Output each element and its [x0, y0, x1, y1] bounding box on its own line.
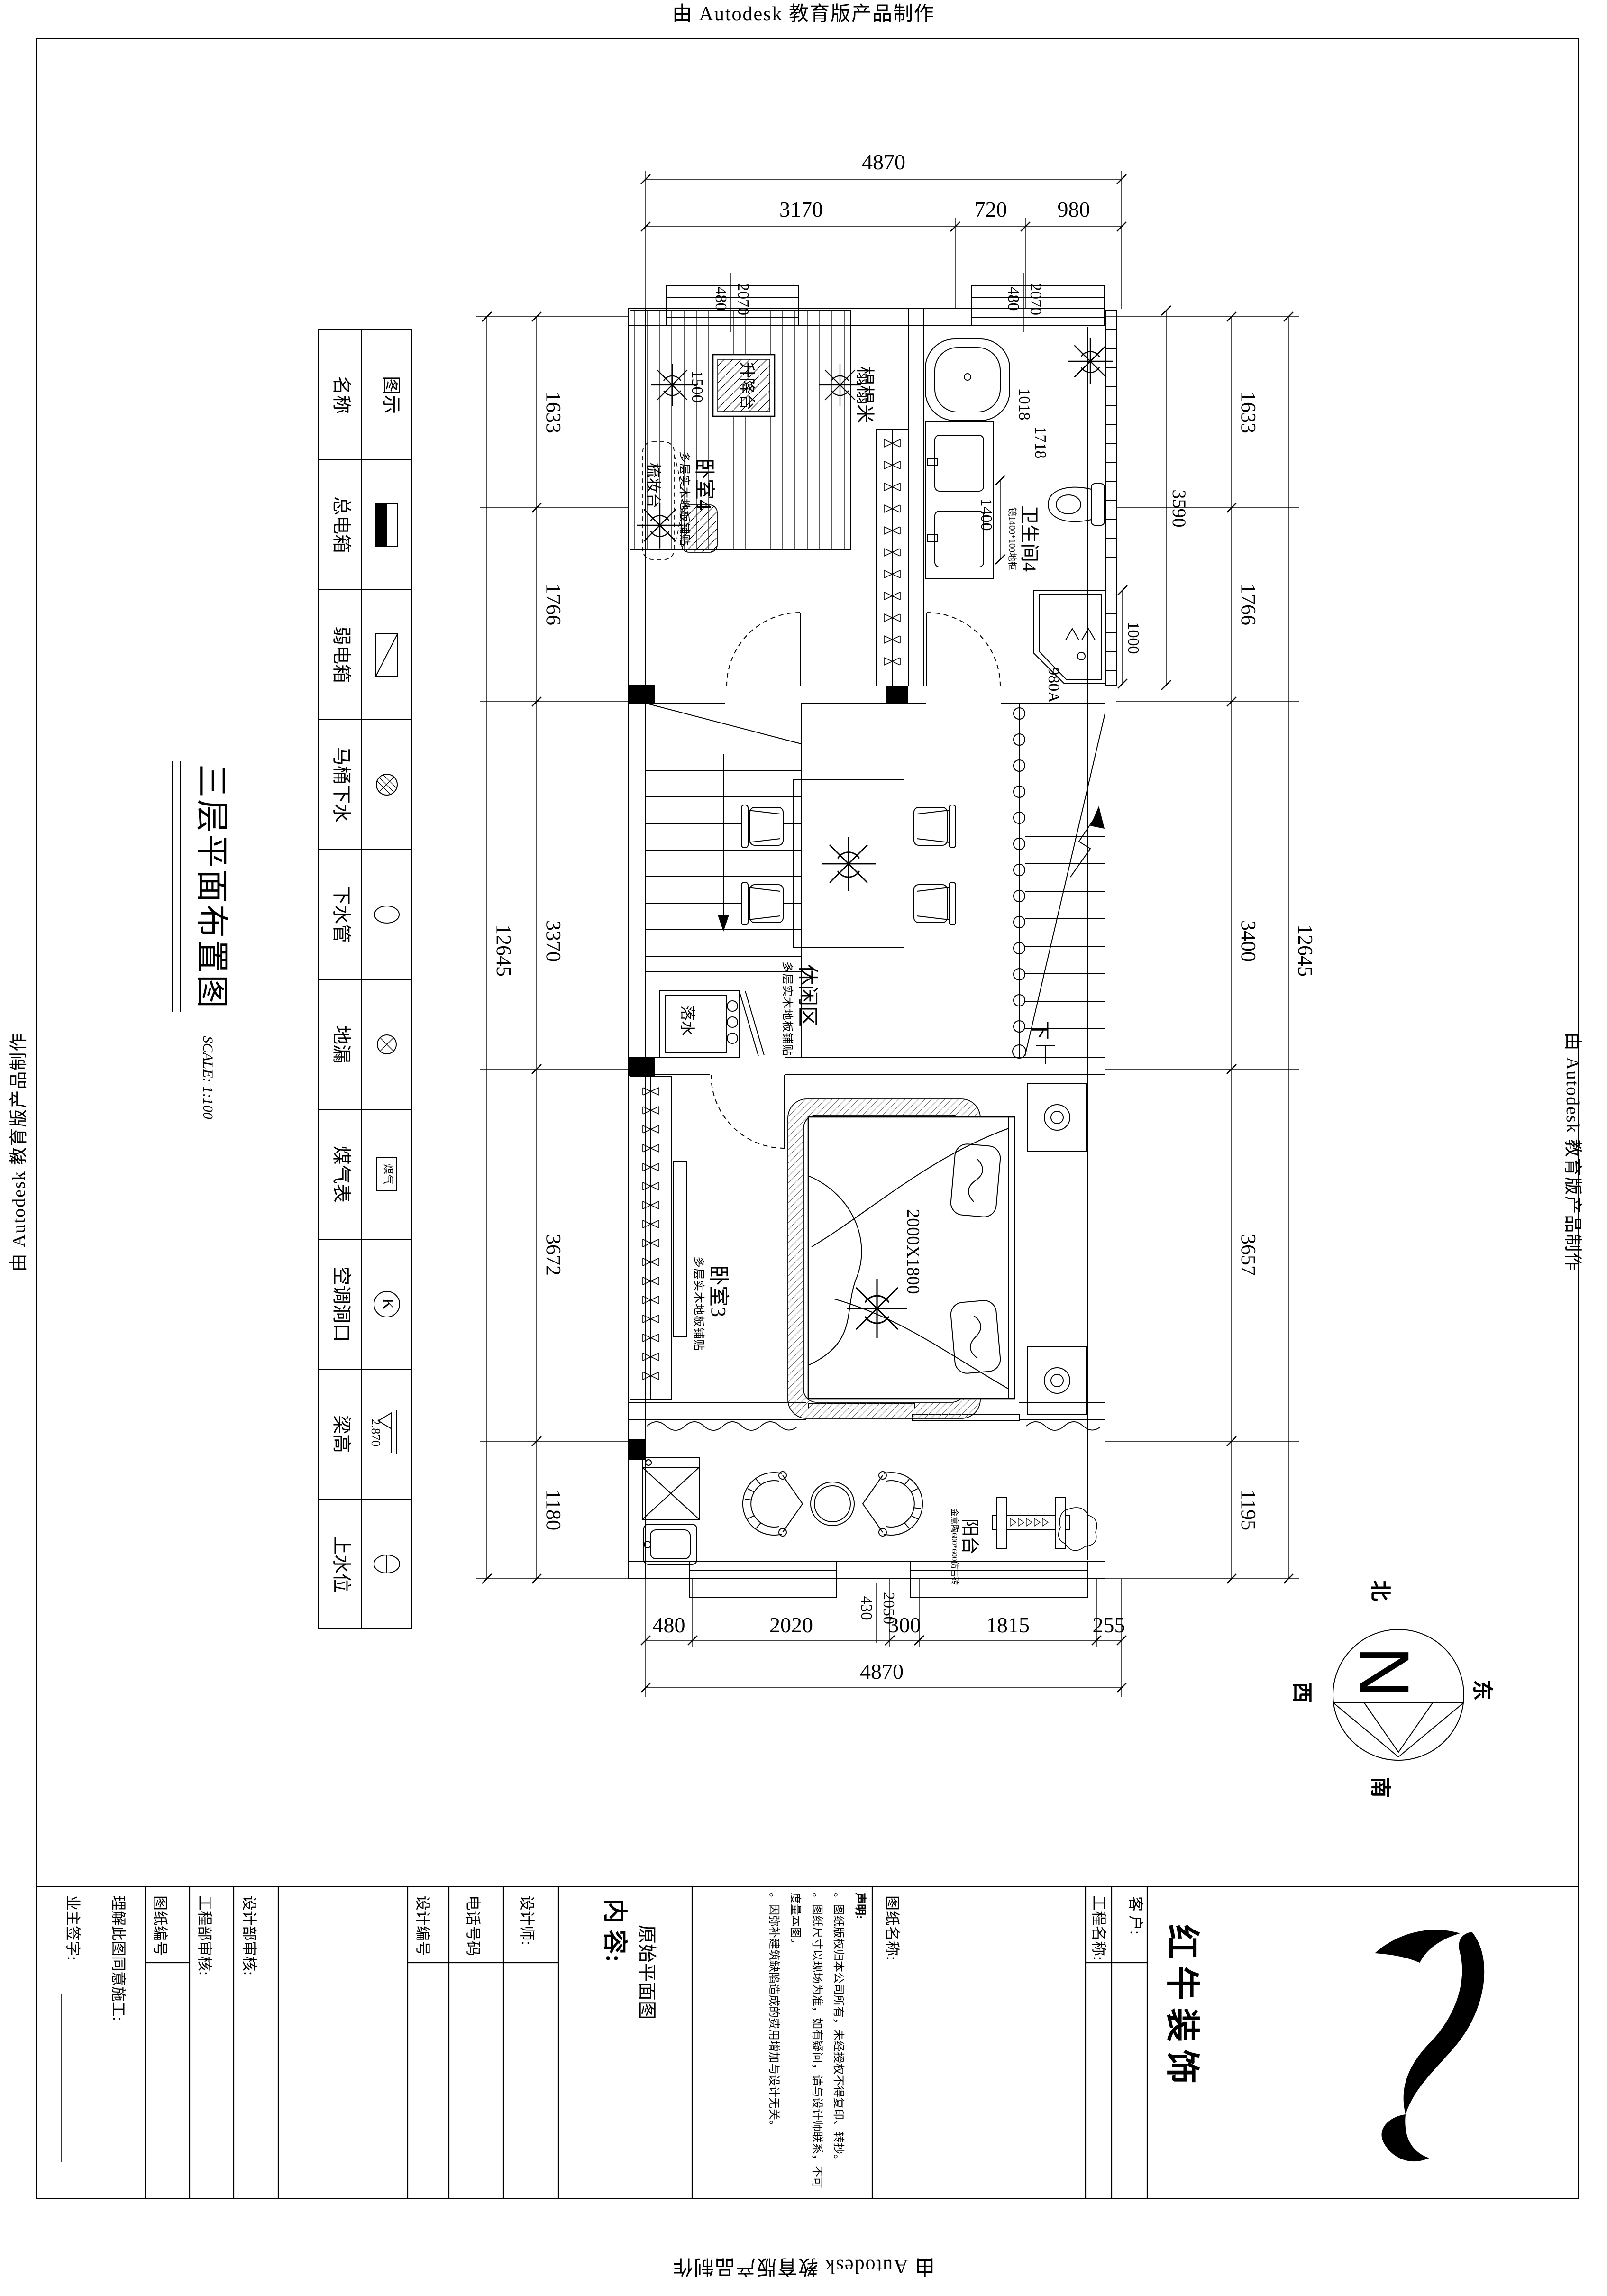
dim-bottom-seg: 255	[1038, 1614, 1180, 1637]
dim-top-seg: 980	[1003, 198, 1145, 221]
legend-ac-symbol-text: K	[379, 1292, 396, 1316]
tb-statement-title: 声明:	[849, 1893, 870, 2196]
dim-right-seg: 1633	[1237, 370, 1259, 455]
tb-content-value: 原始平面图	[637, 1925, 657, 2036]
company-logo	[1375, 1930, 1484, 2162]
drawing-sheet: 由 Autodesk 教育版产品制作 由 Autodesk 教育版产品制作 由 …	[0, 0, 1607, 2296]
label-bed-size: 2000X1800	[903, 1207, 922, 1296]
dim-window-bottom-h: 430	[858, 1585, 875, 1631]
label-bath-note: 镜1400*100地柜	[1007, 507, 1016, 563]
dim-top-overall: 4870	[789, 151, 978, 174]
compass-west: 西	[1291, 1681, 1313, 1704]
dim-bottom-overall: 4870	[811, 1660, 953, 1683]
dim-window-top-w: 2070	[1027, 271, 1044, 327]
label-balcony-note: 金意陶600*600仿古砖	[950, 1509, 959, 1564]
balcony	[642, 1458, 1097, 1564]
tb-statement-item: 。图纸版权归本公司所有，未经授权不得复印、转抄。	[827, 1893, 849, 2196]
legend-label: 弱电箱	[331, 598, 351, 712]
tb-company-name: 红牛装饰	[1163, 1903, 1199, 2112]
dim-left-seg: 1633	[542, 370, 564, 455]
dim-lift: 1500	[688, 364, 705, 409]
tb-statement: 声明: 。图纸版权归本公司所有，未经授权不得复印、转抄。 。图纸尺寸以现场为准，…	[694, 1893, 870, 2196]
tb-designer: 设计师:	[519, 1895, 535, 1955]
dim-window-top-h: 480	[712, 275, 729, 322]
title-underline	[172, 761, 181, 1012]
dim-left-seg: 1180	[542, 1467, 564, 1553]
tb-design-audit: 设计部审核:	[241, 1895, 257, 2021]
dim-tub-len: 1718	[1032, 420, 1049, 465]
tb-eng-audit: 工程部审核:	[196, 1895, 212, 2021]
dim-right-overall: 12645	[1294, 894, 1316, 1007]
bedroom3	[630, 1077, 1100, 1430]
dim-left-seg: 3672	[542, 1212, 564, 1298]
label-lift-platform: 升降台	[738, 360, 755, 412]
label-tatami: 榻榻米	[855, 362, 875, 428]
watermark-left: 由 Autodesk 教育版产品制作	[4, 934, 30, 1370]
tatami-area	[630, 311, 861, 550]
legend-label: 地漏	[331, 988, 351, 1101]
dim-shower-w: 980A	[1045, 661, 1062, 709]
legend-col-symbol: 图示	[381, 338, 401, 452]
tb-statement-item: 。因弥补建筑缺陷造成的费用增加与设计无关。	[762, 1893, 784, 2196]
label-bedroom3: 卧室3	[707, 1265, 729, 1317]
watermark-top: 由 Autodesk 教育版产品制作	[519, 4, 1088, 25]
legend-label: 上水位	[331, 1507, 351, 1621]
compass-north: 北	[1369, 1579, 1391, 1602]
dim-window-bottom-w: 2050	[880, 1582, 897, 1635]
dim-right-seg: 1195	[1237, 1467, 1259, 1553]
label-balcony: 阳台	[959, 1515, 978, 1558]
label-dresser: 梳妆台	[645, 459, 661, 512]
dim-right-seg: 3657	[1237, 1212, 1259, 1298]
dim-right-seg: 3400	[1237, 898, 1259, 984]
drawing-title: 三层平面布置图	[194, 764, 229, 1008]
compass-east: 东	[1471, 1678, 1493, 1702]
wardrobe-bedroom4	[876, 429, 908, 686]
tb-statement-item: 。图纸尺寸以现场为准，如有疑问，请与设计师联系，不可度量本图。	[784, 1893, 827, 2196]
legend-gas-symbol-text: 煤气	[383, 1160, 393, 1189]
dim-bottom-seg: 480	[598, 1614, 740, 1637]
leisure-area	[645, 703, 1105, 1064]
tb-content-label: 内 容:	[601, 1899, 627, 1970]
dimension-lines	[476, 171, 1299, 1697]
label-floor-note: 多层实木地板铺贴	[678, 451, 690, 520]
label-floor-note: 多层实木地板铺贴	[692, 1256, 704, 1328]
dim-left-seg: 3370	[542, 898, 564, 984]
tb-phone: 电话号码	[465, 1895, 481, 1962]
dim-bath: 3590	[1169, 474, 1189, 543]
watermark-bottom: 由 Autodesk 教育版产品制作	[519, 2256, 1088, 2277]
label-floor-note: 多层实木地板铺贴	[781, 961, 793, 1034]
tb-agree: 理解此图同意施工:	[110, 1895, 126, 2166]
legend-label: 空调洞口	[331, 1247, 351, 1361]
label-bathroom4: 卫生间4	[1019, 505, 1039, 558]
label-leisure: 休闲区	[796, 964, 818, 1025]
tb-client: 客 户:	[1127, 1896, 1143, 1982]
legend-label: 梁高	[331, 1377, 351, 1491]
label-drain-box: 落水	[679, 1001, 695, 1040]
compass-n: N	[1347, 1641, 1422, 1703]
legend-label: 总电箱	[331, 468, 351, 582]
dim-left-overall: 12645	[493, 894, 514, 1007]
dim-window-top-w: 2070	[734, 271, 751, 327]
dim-left-seg: 1766	[542, 562, 564, 647]
watermark-right: 由 Autodesk 教育版产品制作	[1562, 934, 1581, 1370]
legend-col-name: 名称	[331, 338, 351, 452]
dim-vanity: 1400	[977, 492, 995, 537]
legend-beam-value: 2.870	[369, 1409, 382, 1456]
dim-tub-dia: 1018	[1015, 377, 1032, 431]
compass-south: 南	[1369, 1775, 1391, 1799]
label-stair-down: 下	[1030, 1018, 1050, 1042]
label-bedroom4: 卧室4	[693, 458, 715, 510]
tb-sheet-name: 图纸名称:	[884, 1895, 900, 2021]
dim-top-seg: 3170	[706, 198, 896, 221]
tb-sheet-no: 图纸编号	[152, 1895, 168, 1962]
tb-project-name: 工程名称:	[1090, 1895, 1106, 2021]
dim-window-top-h: 480	[1004, 275, 1022, 322]
legend-label: 马桶下水	[331, 728, 351, 842]
tb-design-no: 设计编号	[414, 1895, 430, 1962]
legend-label: 煤气表	[331, 1117, 351, 1231]
dim-shower: 1000	[1124, 615, 1141, 660]
dim-right-seg: 1766	[1237, 562, 1259, 647]
drawing-scale: SCALE: 1:100	[201, 1018, 216, 1137]
legend-label: 下水管	[331, 858, 351, 971]
tb-owner-sign: 业主签字:	[64, 1895, 81, 2038]
